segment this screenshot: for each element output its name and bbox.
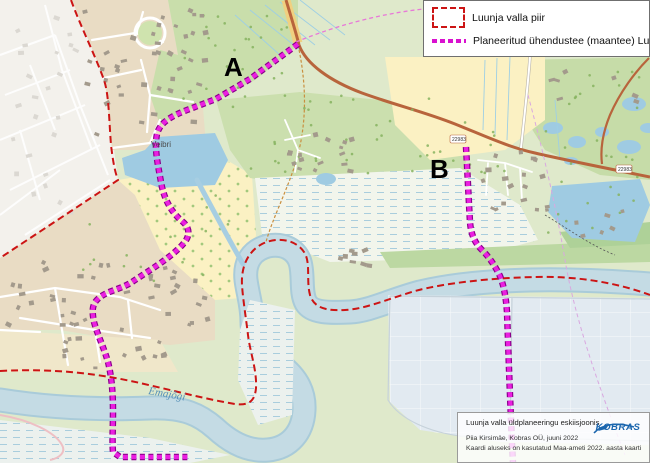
building-footprint [519,150,523,154]
building-footprint [202,58,209,63]
pond-r6 [622,97,646,111]
tree-dot [214,194,217,197]
building-footprint [141,82,147,87]
tree-dot [205,87,208,90]
building-footprint [56,115,61,120]
tree-dot [284,170,287,173]
tree-dot [428,97,431,100]
tree-dot [310,124,313,127]
tree-dot [610,155,613,158]
building-footprint [18,284,22,289]
tree-dot [303,107,306,110]
tree-dot [227,223,230,226]
map-credit: Piia Kirsimäe, Kobras OÜ, juuni 2022 [466,434,643,444]
building-footprint [60,323,66,327]
tree-dot [307,108,310,111]
tree-dot [638,76,641,79]
tree-dot [286,26,289,29]
tree-dot [376,138,379,141]
building-footprint [18,51,24,55]
pond-r4 [617,140,641,154]
building-footprint [193,278,198,283]
building-footprint [67,32,72,36]
tree-dot [609,186,612,189]
tree-dot [169,236,172,239]
building-footprint [61,314,65,318]
tree-dot [249,26,252,29]
tree-dot [568,103,571,106]
marker-a-label: A [224,52,243,82]
tree-dot [277,162,280,165]
tree-dot [439,150,442,153]
road-number-text: 22983 [452,137,466,143]
tree-dot [284,94,287,97]
tree-dot [419,155,422,158]
tree-dot [605,154,608,157]
planned-road-swatch [432,39,466,43]
tree-dot [88,223,91,226]
tree-dot [248,38,251,41]
building-footprint [156,22,161,27]
tree-dot [309,100,312,103]
building-footprint [535,208,539,212]
municipal-border-swatch [432,7,465,28]
tree-dot [367,172,370,175]
building-footprint [200,14,204,18]
marker-b-label: B [430,154,449,184]
pond-small [316,173,336,185]
tree-dot [596,139,599,142]
tree-dot [182,97,185,100]
tree-dot [492,131,495,134]
tree-dot [411,170,414,173]
tree-dot [632,199,635,202]
tree-dot [233,49,236,52]
tree-dot [280,28,283,31]
tree-dot [503,170,506,173]
map-source: Kaardi aluseks on kasutatud Maa-ameti 20… [466,444,643,454]
road-number-text-2: 22983 [618,167,632,173]
tree-dot [245,38,248,41]
tree-dot [223,22,226,25]
building-footprint [62,298,66,303]
building-footprint [31,191,36,197]
tree-dot [452,159,455,162]
tree-dot [618,84,621,87]
building-footprint [93,366,97,369]
tree-dot [426,154,429,157]
tree-dot [207,37,210,40]
tree-dot [340,95,343,98]
tree-dot [636,107,639,110]
tree-dot [631,71,634,74]
tree-dot [557,213,560,216]
tree-dot [274,160,277,163]
building-footprint [14,171,19,176]
building-footprint [192,13,196,16]
legend-item-planned-road: Planeeritud ühendustee (maantee) Luunja … [432,29,649,52]
building-footprint [62,354,66,359]
pond-r3 [595,127,609,137]
building-footprint [522,172,526,176]
tree-dot [345,138,348,141]
map-canvas: A B Emajõgi Veibri 22983 22983 [0,0,650,463]
tree-dot [570,162,573,165]
road-number-plate: 22983 [450,135,466,143]
tree-dot [579,92,582,95]
tree-dot [619,211,622,214]
tree-dot [205,206,208,209]
tree-dot [232,106,235,109]
building-footprint [67,337,71,342]
tree-dot [426,144,429,147]
tree-dot [389,120,392,123]
tree-dot [214,44,217,47]
tree-dot [592,85,595,88]
kobras-logo-swoosh [592,422,636,435]
building-footprint [119,93,124,96]
building-footprint [119,327,124,332]
kobras-logo: KOBRAS [592,422,644,433]
tree-dot [545,130,548,133]
building-footprint [77,274,83,278]
tree-dot [591,227,594,230]
tree-dot [493,134,496,137]
tree-dot [273,141,276,144]
planning-map: A B Emajõgi Veibri 22983 22983 Luunja va… [0,0,650,463]
tree-dot [181,261,184,264]
tree-dot [380,134,383,137]
tree-dot [281,72,284,75]
tree-dot [345,159,348,162]
building-footprint [155,41,161,45]
tree-dot [565,220,568,223]
building-footprint [190,119,197,124]
tree-dot [411,108,414,111]
building-footprint [165,312,171,316]
legend-label-border: Luunja valla piir [472,12,545,24]
building-footprint [485,167,491,172]
tree-dot [636,176,639,179]
building-footprint [298,153,302,157]
building-footprint [366,263,372,268]
tree-dot [266,15,269,18]
tree-dot [575,95,578,98]
tree-dot [586,202,589,205]
tree-dot [260,36,263,39]
tree-dot [93,258,96,261]
tree-dot [496,165,499,168]
tree-dot [123,265,126,268]
building-footprint [352,252,358,256]
village-label: Veibri [151,140,171,149]
building-footprint [545,208,549,212]
tree-dot [466,170,469,173]
building-footprint [152,51,157,55]
tree-dot [489,144,492,147]
building-footprint [502,176,509,181]
tree-dot [251,46,254,49]
tree-dot [125,254,128,257]
legend-box: Luunja valla piir Planeeritud ühendustee… [423,0,650,57]
tree-dot [617,193,620,196]
tree-dot [315,159,318,162]
tree-dot [330,101,333,104]
building-footprint [183,34,188,39]
tree-dot [480,171,483,174]
building-footprint [501,201,506,205]
tree-dot [183,57,186,60]
tree-dot [375,124,378,127]
legend-item-border: Luunja valla piir [432,6,649,29]
tree-dot [273,77,276,80]
road-number-plate-2: 22983 [616,165,632,173]
building-footprint [100,67,105,72]
building-footprint [170,77,175,82]
tree-dot [244,95,247,98]
legend-label-planned-road: Planeeritud ühendustee (maantee) Luunja … [473,35,650,47]
pond-r2 [568,136,586,148]
tree-dot [204,230,207,233]
tree-dot [250,167,253,170]
building-footprint [574,220,578,225]
info-box: Luunja valla üldplaneeringu eskiisjoonis… [457,412,650,463]
tree-dot [564,146,567,149]
tree-dot [205,26,208,29]
tree-dot [202,274,205,277]
tree-dot [560,180,563,183]
tree-dot [617,71,620,74]
tree-dot [464,121,467,124]
tree-dot [89,263,92,266]
tree-dot [217,15,220,18]
building-footprint [75,336,82,341]
tree-dot [314,157,317,160]
tree-dot [625,156,628,159]
tree-dot [631,158,634,161]
tree-dot [82,268,85,271]
tree-dot [588,74,591,77]
building-footprint [343,254,348,259]
tree-dot [140,266,143,269]
tree-dot [352,98,355,101]
tree-dot [547,231,550,234]
building-footprint [29,300,35,305]
tree-dot [351,153,354,156]
